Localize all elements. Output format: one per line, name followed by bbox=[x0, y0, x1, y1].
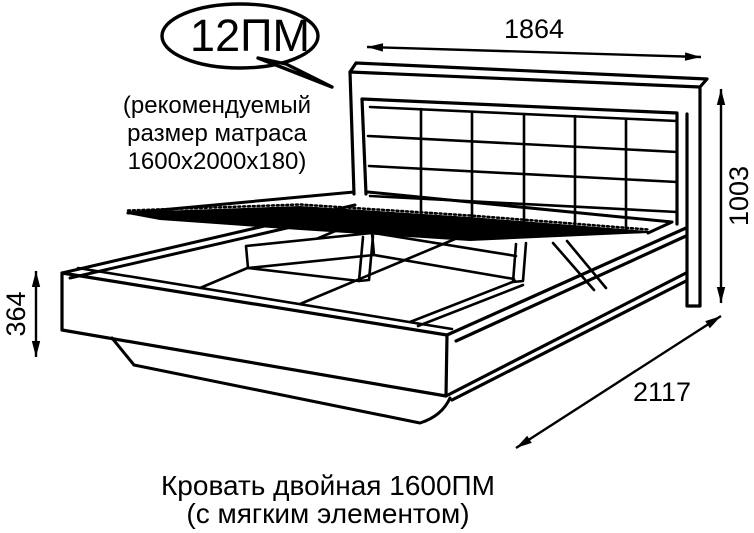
figure-caption: Кровать двойная 1600ПМ (с мягким элемент… bbox=[161, 470, 495, 529]
dimension-height: 1003 bbox=[721, 89, 754, 303]
note-line-2: размер матраса bbox=[127, 120, 307, 147]
callout-bubble: 12ПМ bbox=[162, 4, 332, 87]
note-line-3: 1600х2000х180) bbox=[128, 148, 307, 175]
note-line-1: (рекомендуемый bbox=[123, 92, 311, 119]
caption-line-1: Кровать двойная 1600ПМ bbox=[161, 470, 495, 501]
headboard-top-bevel bbox=[350, 63, 707, 87]
divider-panel bbox=[246, 233, 374, 268]
technical-drawing-page: 12ПМ (рекомендуемый размер матраса 1600х… bbox=[0, 0, 754, 533]
dimension-width: 1864 bbox=[367, 14, 701, 57]
callout-label: 12ПМ bbox=[190, 10, 310, 61]
dimension-base-height-value: 364 bbox=[1, 291, 31, 336]
dimension-width-arrow bbox=[367, 47, 701, 57]
caption-line-2: (с мягким элементом) bbox=[186, 498, 469, 529]
dimension-height-value: 1003 bbox=[724, 166, 754, 226]
mattress-note: (рекомендуемый размер матраса 1600х2000х… bbox=[123, 92, 311, 175]
bed-technical-drawing: 12ПМ (рекомендуемый размер матраса 1600х… bbox=[0, 0, 754, 533]
dimension-base-height: 364 bbox=[1, 271, 36, 357]
headboard bbox=[350, 63, 707, 306]
callout-tail bbox=[258, 58, 332, 87]
dimension-length: 2117 bbox=[516, 316, 721, 448]
base-plinth bbox=[112, 338, 450, 423]
dimension-length-value: 2117 bbox=[633, 377, 691, 407]
dimension-width-value: 1864 bbox=[504, 14, 564, 44]
